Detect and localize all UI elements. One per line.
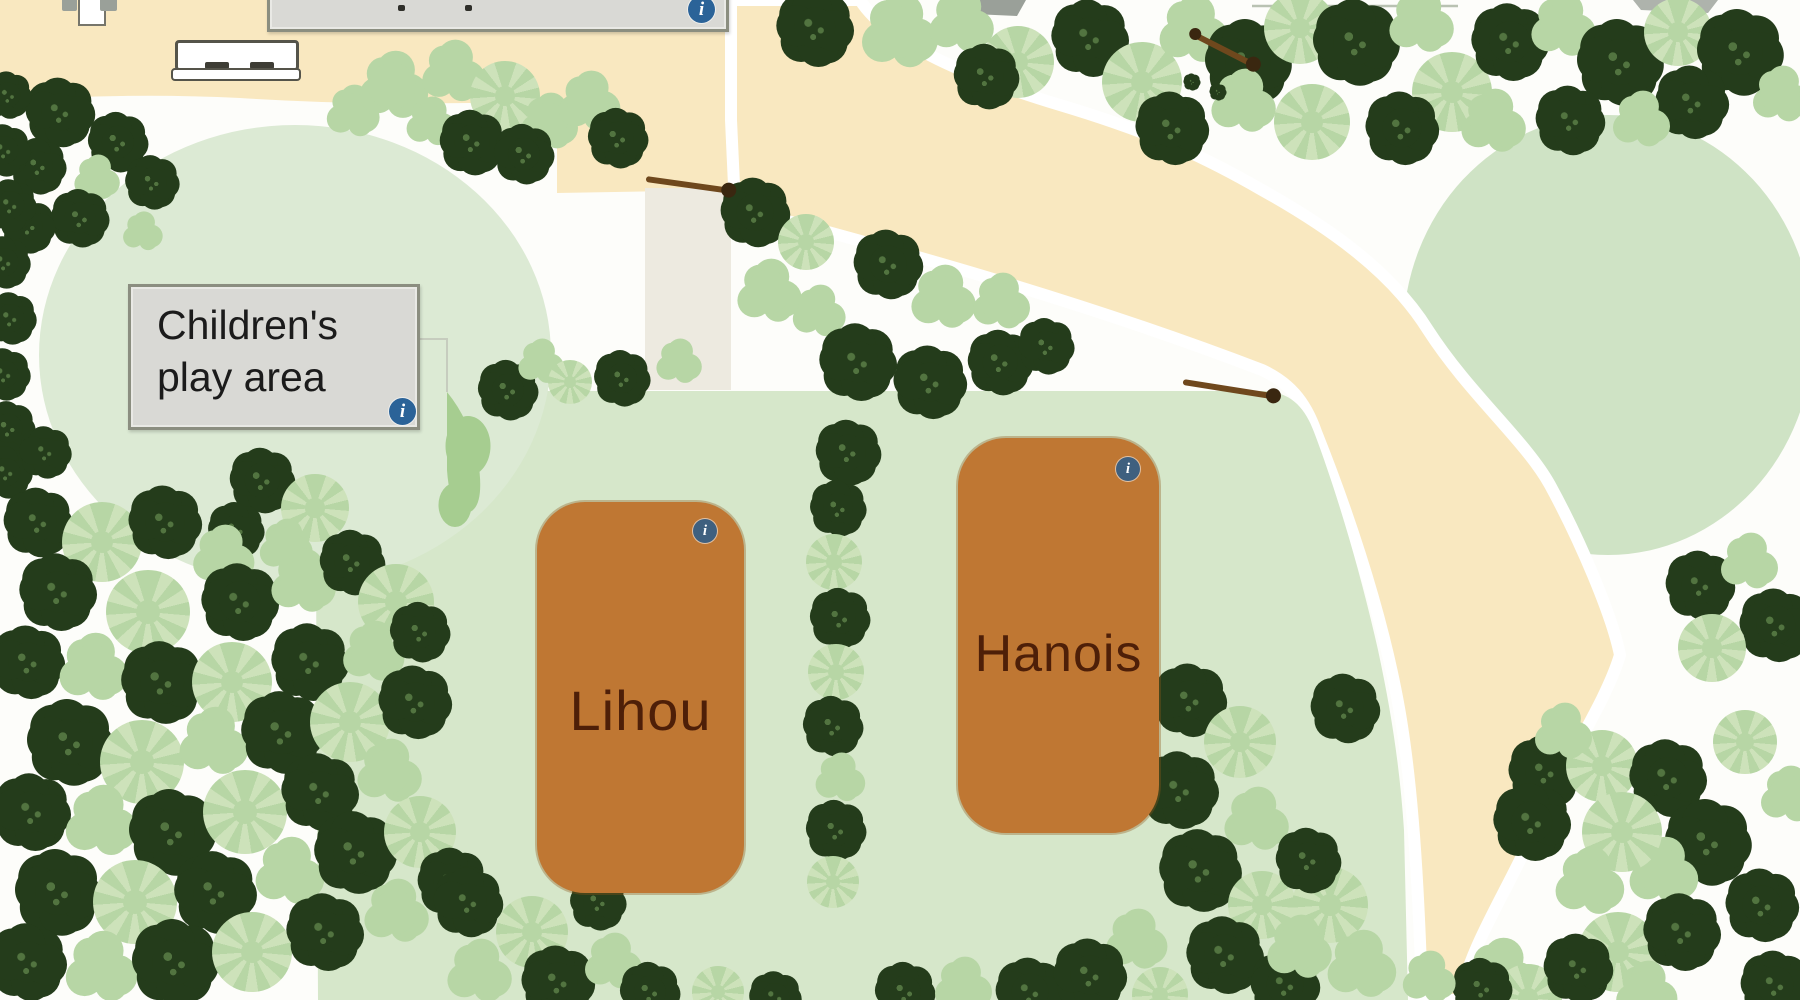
building-block-icon xyxy=(62,0,77,11)
campsite-map: Lihou i Hanois i i Children's play area … xyxy=(0,0,1800,1000)
text-remnant-dot xyxy=(398,5,405,11)
picnic-bench-icon xyxy=(171,68,301,81)
pitch-lihou-label: Lihou xyxy=(527,678,755,743)
picnic-bench-icon xyxy=(175,40,299,71)
pitch-hanois-label: Hanois xyxy=(948,624,1169,684)
info-icon[interactable]: i xyxy=(688,0,715,23)
map-label-partial: i xyxy=(267,0,729,32)
building-block-icon xyxy=(100,0,117,11)
path-stub xyxy=(557,90,731,193)
play-area-label-line1: Children's xyxy=(157,299,417,351)
text-remnant-dot xyxy=(465,5,472,11)
info-icon[interactable]: i xyxy=(1116,457,1140,481)
play-area-label-line2: play area xyxy=(157,351,417,403)
info-icon[interactable]: i xyxy=(693,519,717,543)
pitch-hanois[interactable]: Hanois i xyxy=(958,438,1159,833)
play-area-label: Children's play area i xyxy=(128,284,420,430)
info-icon[interactable]: i xyxy=(389,398,416,425)
pitch-lihou[interactable]: Lihou i xyxy=(537,502,744,893)
terrain-layer xyxy=(0,0,1800,1000)
path-pale-stub xyxy=(645,188,731,390)
building-roof xyxy=(1633,0,1718,13)
